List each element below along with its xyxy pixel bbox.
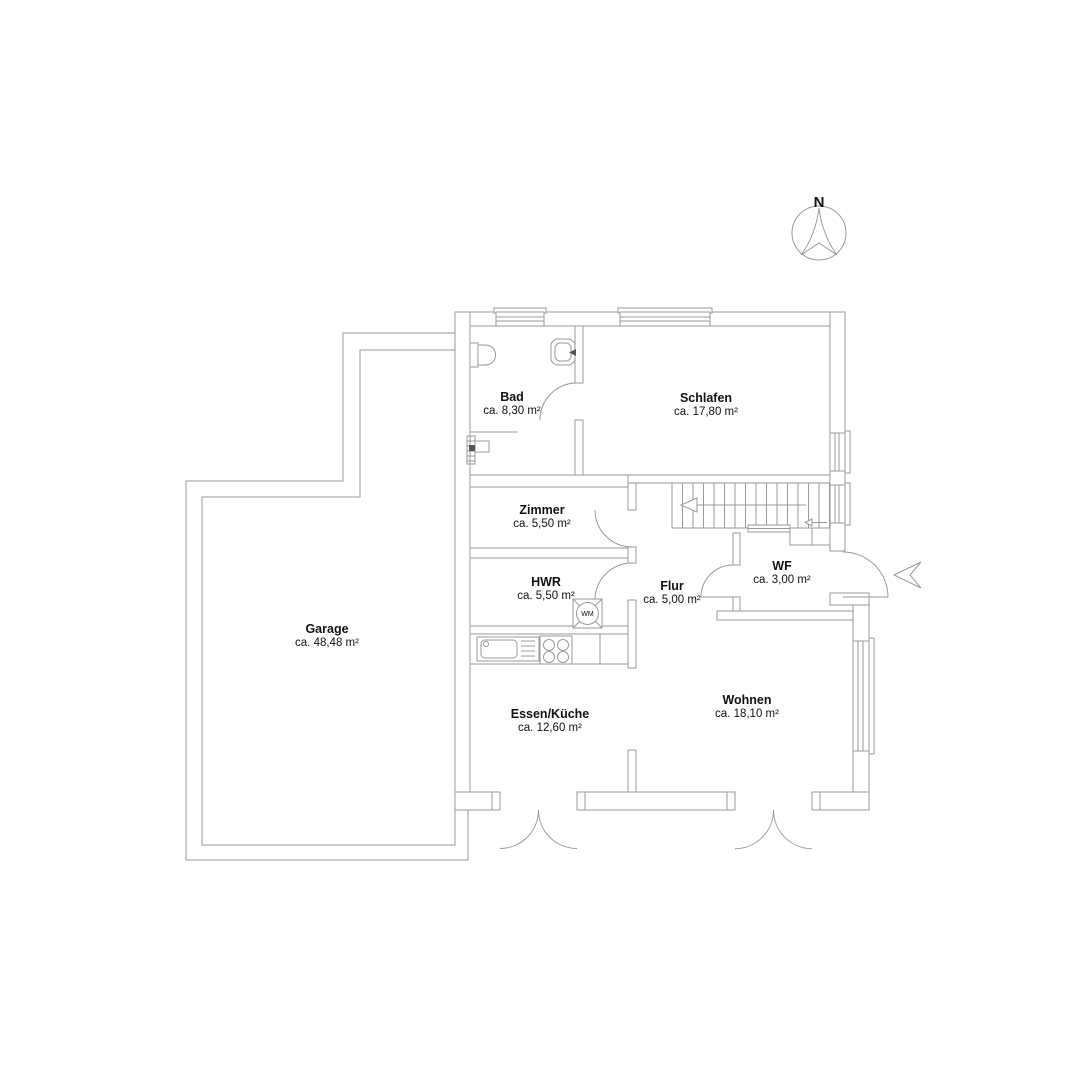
compass-north-label: N [814, 194, 825, 211]
door-zimmer [595, 510, 632, 547]
house-exterior-walls [455, 312, 869, 810]
room-area-hwr: ca. 5,50 m² [517, 590, 575, 602]
washing-machine: WM [573, 599, 602, 628]
shower-icon [467, 432, 518, 464]
windows [494, 308, 874, 754]
floor-plan-drawing: WM N Bad ca. 8,30 m² Schlafen ca [0, 0, 1080, 1080]
washing-machine-label: WM [581, 611, 594, 618]
window-schlafen-top [618, 308, 712, 326]
entrance-arrow-icon [894, 562, 921, 588]
floor-plan-canvas: WM N Bad ca. 8,30 m² Schlafen ca [0, 0, 1080, 1080]
staircase [672, 483, 830, 545]
room-area-essen-kueche: ca. 12,60 m² [518, 722, 582, 734]
kitchen-counter [470, 634, 628, 664]
door-hwr [595, 563, 632, 600]
room-area-wf: ca. 3,00 m² [753, 574, 811, 586]
window-bad [494, 308, 546, 326]
door-entrance [843, 552, 888, 597]
compass: N [792, 194, 846, 260]
garage-walls [186, 333, 468, 860]
door-bad [540, 383, 577, 420]
room-label-zimmer: Zimmer [519, 503, 564, 517]
door-wf [701, 565, 733, 597]
room-area-schlafen: ca. 17,80 m² [674, 406, 738, 418]
room-area-garage: ca. 48,48 m² [295, 637, 359, 649]
room-label-hwr: HWR [531, 575, 561, 589]
room-area-flur: ca. 5,00 m² [643, 594, 701, 606]
window-stairs [830, 483, 850, 525]
stair-landing [790, 528, 830, 545]
room-label-wohnen: Wohnen [722, 693, 771, 707]
window-schlafen-right [830, 431, 850, 473]
french-door-essen [500, 810, 577, 849]
toilet-icon [470, 343, 496, 367]
room-area-bad: ca. 8,30 m² [483, 405, 541, 417]
room-label-essen-kueche: Essen/Küche [511, 707, 590, 721]
stair-direction-arrowhead [681, 498, 697, 512]
french-door-wohnen [735, 810, 812, 849]
room-label-schlafen: Schlafen [680, 391, 732, 405]
room-label-flur: Flur [660, 579, 684, 593]
room-area-zimmer: ca. 5,50 m² [513, 518, 571, 530]
room-area-wohnen: ca. 18,10 m² [715, 708, 779, 720]
sink-icon [551, 339, 576, 365]
room-label-wf: WF [772, 559, 792, 573]
room-label-bad: Bad [500, 390, 524, 404]
north-needle-icon [801, 208, 837, 255]
window-wohnen [853, 638, 874, 754]
room-label-garage: Garage [305, 622, 348, 636]
